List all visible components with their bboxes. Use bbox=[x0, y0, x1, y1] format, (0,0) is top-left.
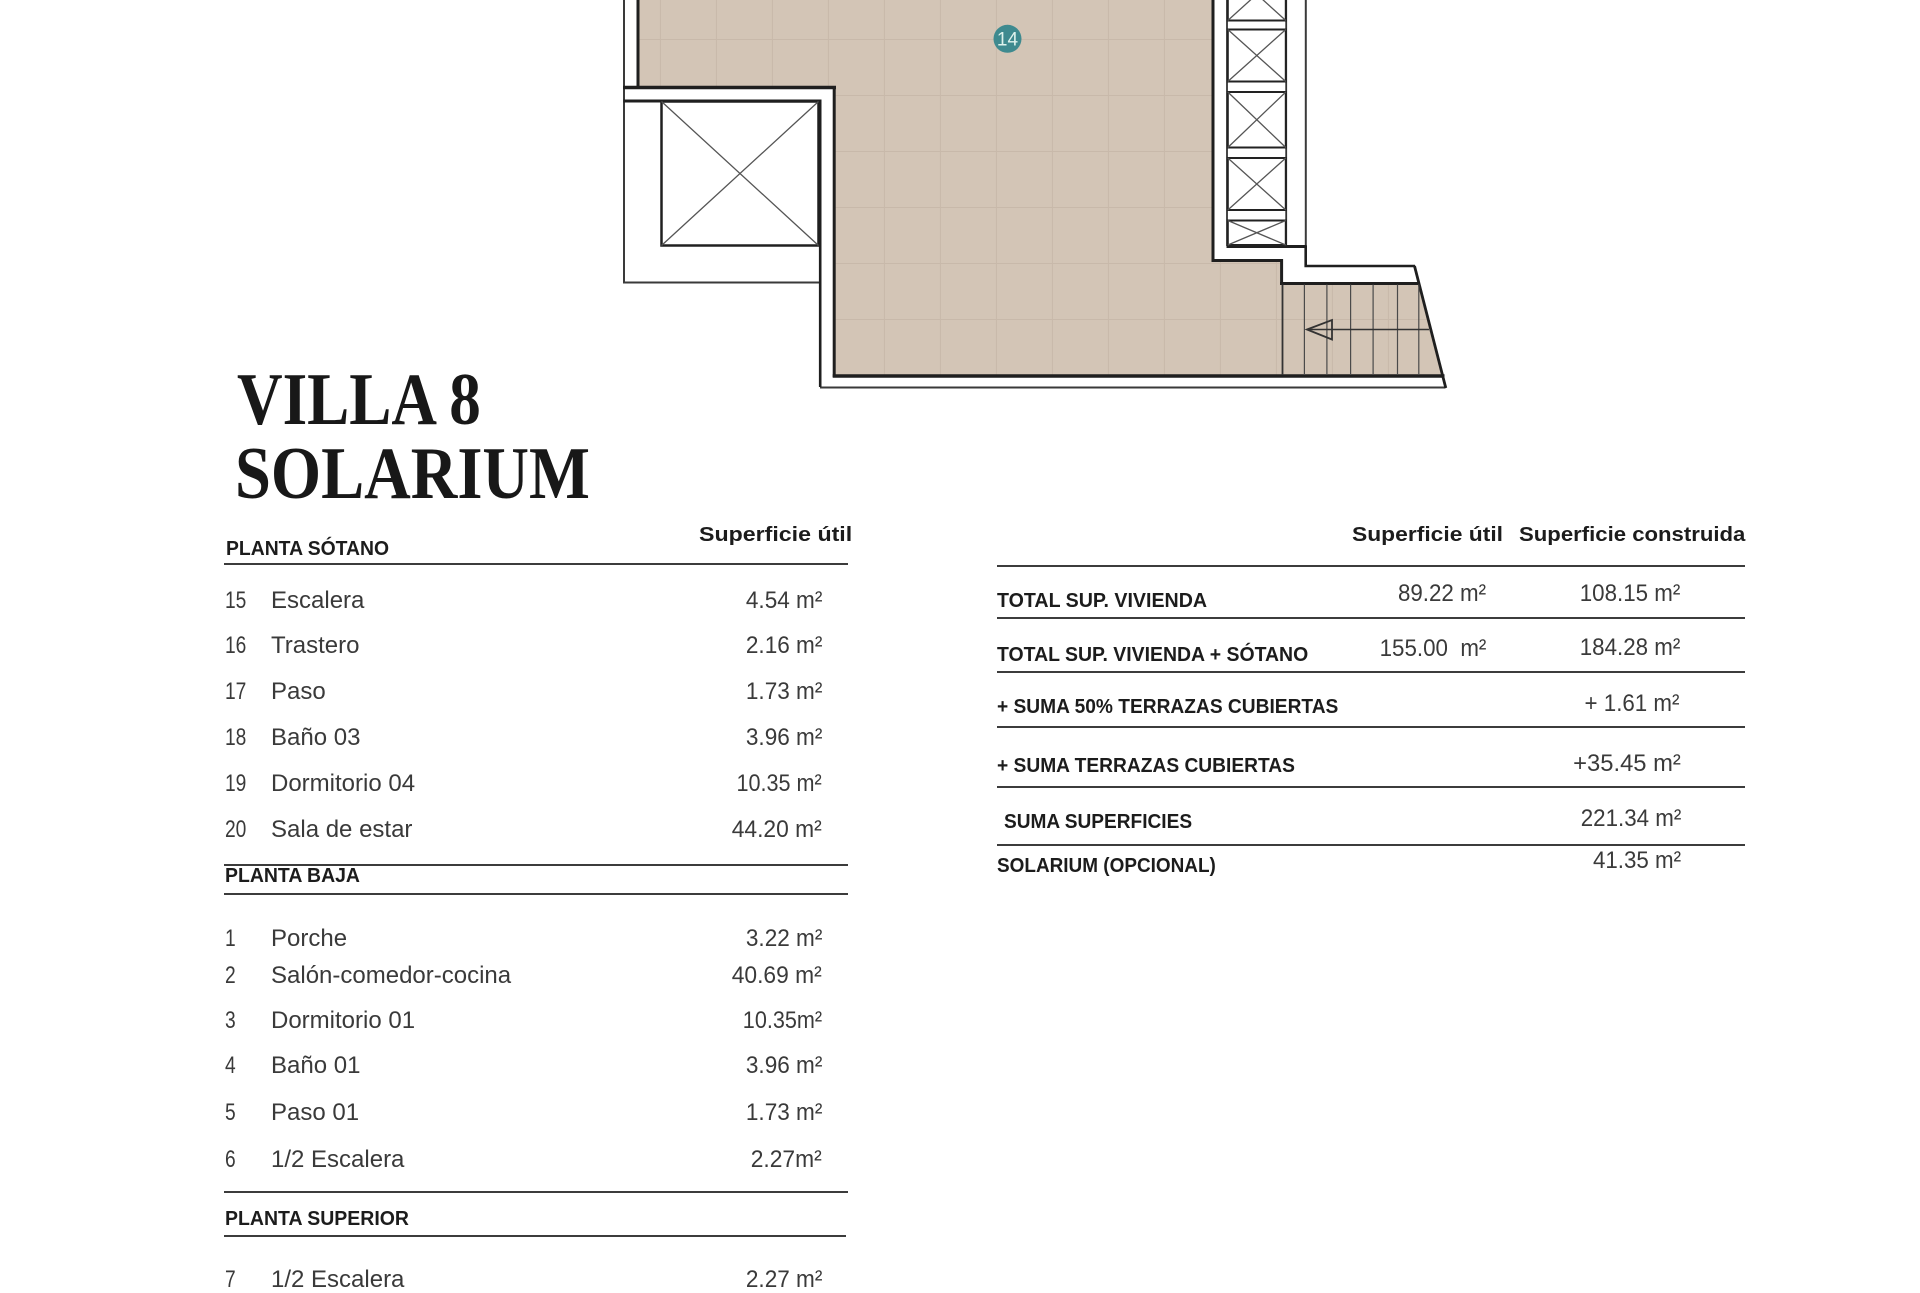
svg-text:14: 14 bbox=[997, 30, 1019, 51]
